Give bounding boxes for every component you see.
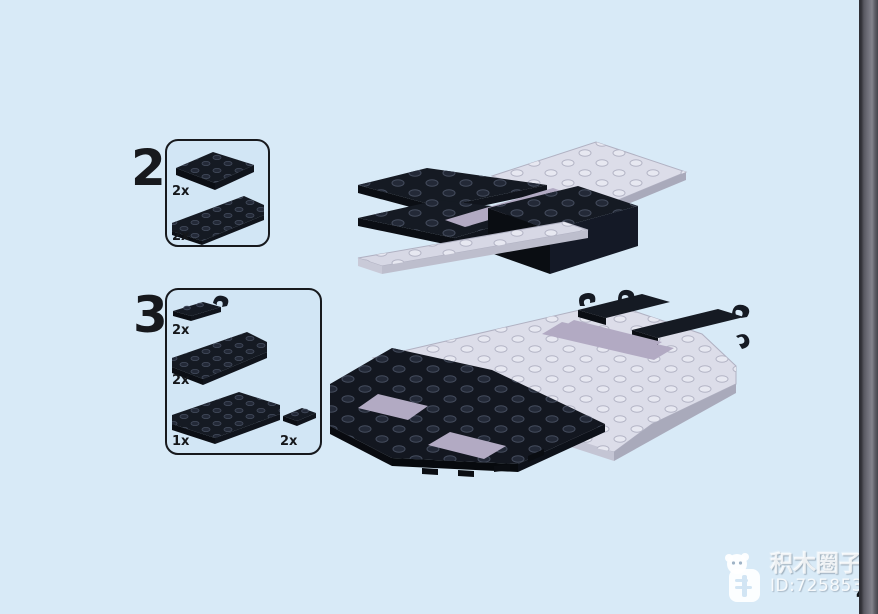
watermark: 积木圈子 ID:72585324 <box>722 552 878 606</box>
part-qty-label: 2x <box>172 374 189 387</box>
step-2-number: 2 <box>131 143 165 193</box>
instruction-page: 2 2x 2x <box>0 0 878 614</box>
part-plate-1x2-black <box>283 408 316 426</box>
watermark-logo <box>722 552 764 606</box>
part-qty-label: 1x <box>172 435 189 448</box>
part-qty-label: 2x <box>172 230 189 243</box>
part-plate-1x4-with-clip-black <box>173 296 228 321</box>
step-3-number: 3 <box>133 290 167 340</box>
part-qty-label: 2x <box>172 324 189 337</box>
step-2-assembly-diagram <box>338 128 708 293</box>
step-3-assembly-diagram <box>322 284 752 484</box>
step-3-parts-art <box>167 290 320 453</box>
part-qty-label: 2x <box>172 185 189 198</box>
step-3-parts-callout: 2x 2x 1x 2x <box>165 288 322 455</box>
part-qty-label: 2x <box>280 435 297 448</box>
step-2-parts-callout: 2x 2x <box>165 139 270 247</box>
page-edge-shadow <box>859 0 878 614</box>
